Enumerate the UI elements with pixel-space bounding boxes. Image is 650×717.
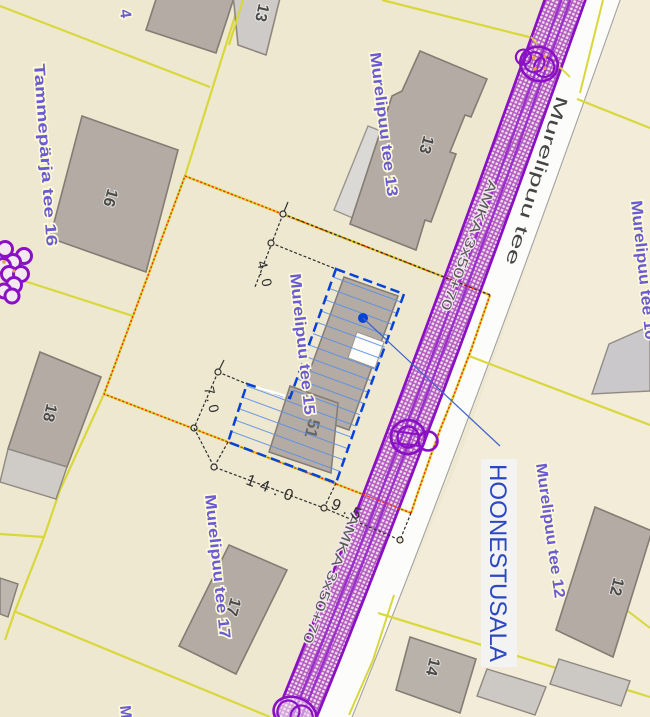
svg-text:M: M	[116, 705, 134, 717]
svg-text:HOONESTUSALA: HOONESTUSALA	[484, 464, 511, 662]
